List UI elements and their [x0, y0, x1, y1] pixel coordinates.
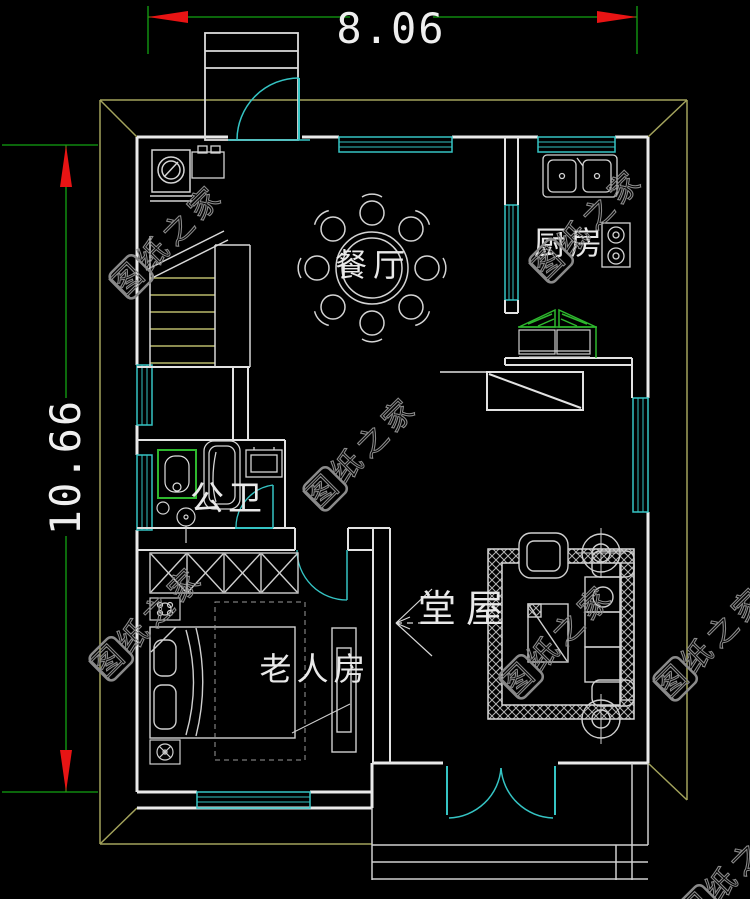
- bathroom-sink: [246, 447, 282, 477]
- window-top-1: [339, 137, 452, 152]
- dimension-height-value: 10.66: [41, 399, 90, 535]
- label-dining-room: 餐厅: [335, 247, 411, 283]
- floor-plan-canvas: 8.06 10.66: [0, 0, 750, 899]
- label-bathroom: 公卫: [190, 480, 266, 518]
- svg-text:图纸之家: 图纸之家: [650, 580, 750, 705]
- dimension-width-value: 8.06: [336, 4, 445, 53]
- entry-double-door: [447, 766, 555, 818]
- window-bath-left: [137, 455, 152, 530]
- kitchen-counter: [518, 310, 597, 358]
- window-hall-right: [633, 398, 648, 512]
- watermarks: 图纸之家 图纸之家 图纸之家 图纸之家 图纸之家 图纸之家 图纸之家: [85, 161, 750, 899]
- dimension-arrow-right: [597, 11, 637, 23]
- svg-text:图纸之家: 图纸之家: [674, 808, 750, 899]
- bedroom-tv-cabinet: [332, 628, 356, 752]
- dimension-top: 8.06: [148, 4, 637, 54]
- label-hall: 堂屋: [418, 589, 514, 631]
- watermark-stamp: 图纸之家: [85, 559, 211, 685]
- laundry-cabinet: [192, 146, 224, 178]
- window-top-2: [538, 137, 615, 152]
- bedroom-leader-line: [292, 704, 350, 733]
- svg-text:图纸之家: 图纸之家: [300, 390, 425, 515]
- watermark-stamp: 图纸之家: [525, 161, 651, 287]
- hall-shoe-cabinet: [487, 372, 583, 410]
- watermark-stamp: 图纸之家: [299, 389, 425, 515]
- window-kitchen: [505, 205, 518, 300]
- dimension-left: 10.66: [2, 145, 98, 792]
- hall-armchair: [519, 533, 568, 578]
- window-bedroom-bottom: [197, 792, 310, 808]
- dimension-arrow-up: [60, 145, 72, 187]
- bedroom-nightstand-fan: [150, 740, 180, 764]
- watermark-stamp: 图纸之家: [649, 579, 750, 705]
- label-bedroom: 老人房: [259, 651, 370, 687]
- bedroom-door: [297, 550, 347, 600]
- dimension-arrow-left: [148, 11, 188, 23]
- dimension-arrow-down: [60, 750, 72, 792]
- entry-steps: [372, 763, 648, 880]
- entry-canopy: [205, 33, 298, 140]
- washing-machine: [150, 150, 192, 201]
- floor-plan-drawing: 8.06 10.66: [0, 0, 750, 899]
- window-stair-left: [137, 365, 152, 425]
- watermark-stamp: 图纸之家: [673, 807, 750, 899]
